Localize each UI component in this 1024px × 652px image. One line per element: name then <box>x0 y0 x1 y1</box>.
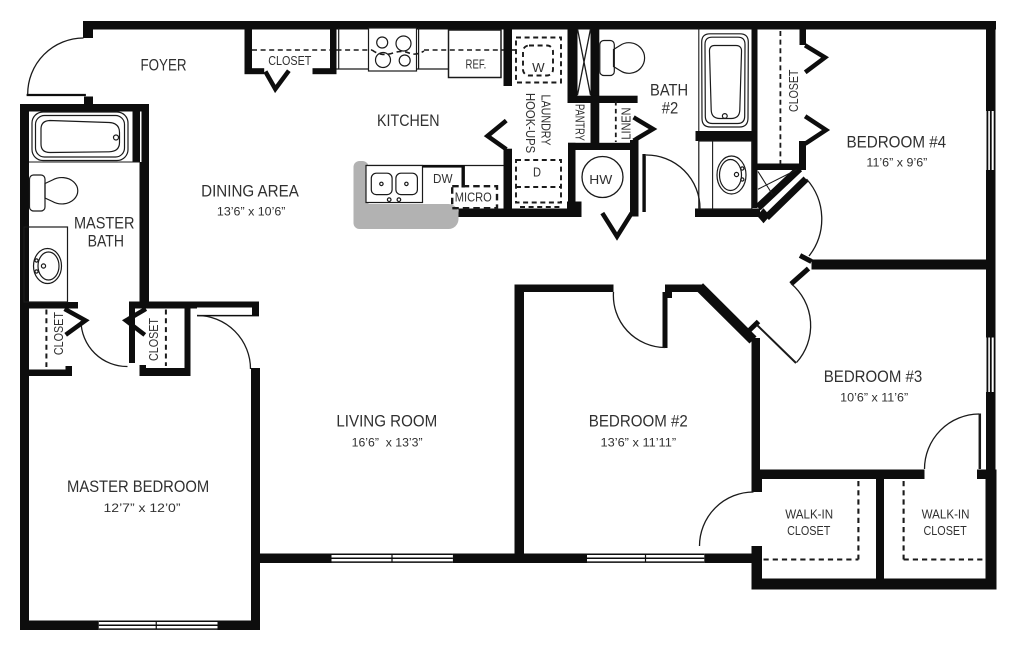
svg-text:13’6” x 11’11”: 13’6” x 11’11” <box>601 436 677 450</box>
svg-text:MASTER BEDROOM: MASTER BEDROOM <box>67 477 209 496</box>
svg-text:CLOSET: CLOSET <box>268 53 311 68</box>
svg-text:CLOSET: CLOSET <box>146 318 161 361</box>
svg-text:HOOK-UPS: HOOK-UPS <box>523 93 538 153</box>
svg-text:BEDROOM #4: BEDROOM #4 <box>846 132 946 151</box>
svg-text:11’6” x 9’6”: 11’6” x 9’6” <box>866 156 927 170</box>
svg-text:LAUNDRY: LAUNDRY <box>539 95 554 146</box>
svg-text:WALK-IN: WALK-IN <box>785 506 833 521</box>
svg-text:CLOSET: CLOSET <box>786 70 801 112</box>
svg-text:MICRO: MICRO <box>455 190 492 205</box>
svg-text:16’6” x 13’3”: 16’6” x 13’3” <box>352 436 423 450</box>
svg-text:REF.: REF. <box>466 57 487 72</box>
svg-text:MASTER: MASTER <box>74 214 135 233</box>
svg-text:HW: HW <box>589 172 613 187</box>
svg-text:PANTRY: PANTRY <box>572 104 587 141</box>
svg-text:WALK-IN: WALK-IN <box>922 506 970 521</box>
svg-text:FOYER: FOYER <box>141 56 187 75</box>
svg-text:CLOSET: CLOSET <box>787 523 830 538</box>
svg-text:BATH: BATH <box>88 231 124 250</box>
svg-text:13’6” x 10’6”: 13’6” x 10’6” <box>217 204 286 218</box>
svg-text:LINEN: LINEN <box>619 108 634 140</box>
svg-text:DW: DW <box>433 171 453 186</box>
svg-text:#2: #2 <box>662 98 679 117</box>
svg-text:DINING AREA: DINING AREA <box>201 181 299 200</box>
svg-text:BEDROOM #2: BEDROOM #2 <box>589 412 688 431</box>
svg-text:D: D <box>533 165 541 180</box>
svg-text:10’6” x 11’6”: 10’6” x 11’6” <box>840 390 908 404</box>
svg-text:W: W <box>532 60 545 75</box>
svg-text:CLOSET: CLOSET <box>924 523 967 538</box>
svg-text:BEDROOM #3: BEDROOM #3 <box>824 367 922 386</box>
svg-text:CLOSET: CLOSET <box>51 312 66 355</box>
svg-text:KITCHEN: KITCHEN <box>377 111 440 130</box>
svg-text:12’7” x 12’0”: 12’7” x 12’0” <box>104 501 181 515</box>
svg-text:LIVING ROOM: LIVING ROOM <box>336 412 437 431</box>
svg-text:BATH: BATH <box>650 80 688 99</box>
